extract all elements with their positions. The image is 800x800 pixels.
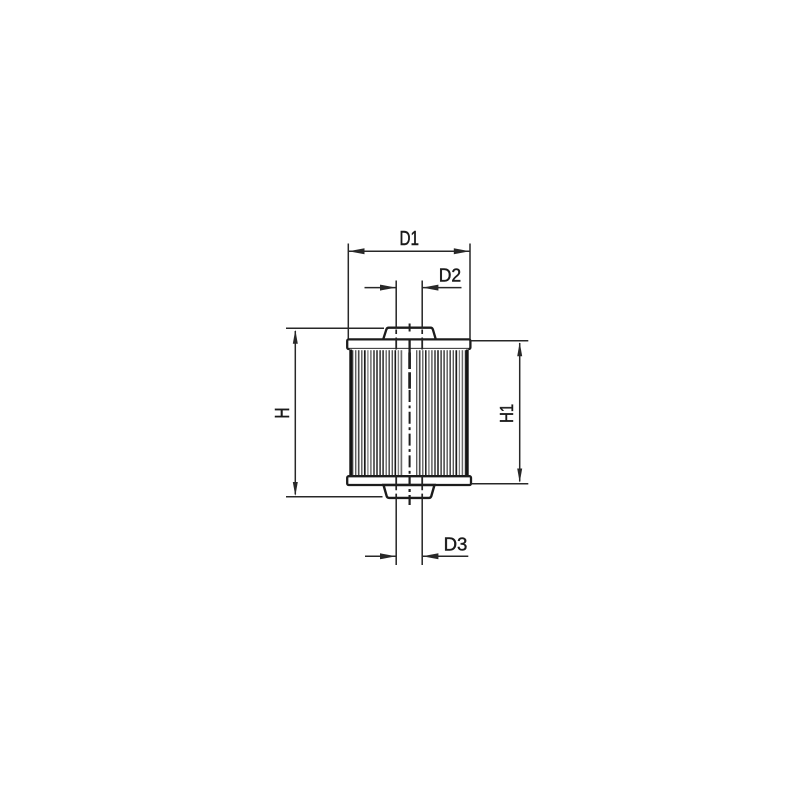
svg-text:D2: D2 [439, 265, 461, 286]
svg-text:H1: H1 [496, 404, 517, 423]
svg-text:H: H [272, 407, 294, 418]
svg-text:D3: D3 [444, 534, 468, 555]
svg-text:D1: D1 [399, 227, 419, 250]
